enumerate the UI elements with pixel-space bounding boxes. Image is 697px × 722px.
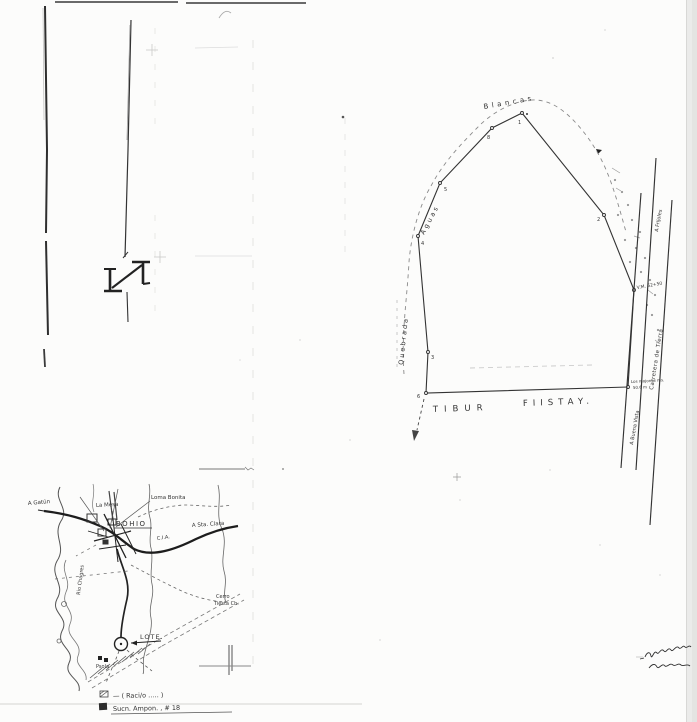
vertex-number-6: 6 — [417, 394, 420, 400]
vertex-number-4: 4 — [421, 241, 424, 247]
scan-canvas: 1 2 8 5 4 3 6 — [0, 0, 697, 722]
river-loop-2 — [57, 639, 61, 643]
dust-specks — [239, 29, 661, 641]
left-border-line — [45, 6, 47, 233]
map-legend: — ( Raci/o ….. ) Sucn. Ampon. , # 18 — [99, 691, 232, 714]
creek-dashed-line — [403, 100, 626, 374]
scanned-survey-document: 1 2 8 5 4 3 6 — [0, 0, 697, 722]
adjoiner-name-2: FIISTAY. — [523, 397, 594, 409]
main-road — [44, 511, 238, 553]
cia-label: C.I.A. — [156, 534, 170, 542]
creek-flow-arrow — [412, 430, 419, 441]
corner-note-line2: 50.6 m — [633, 384, 647, 390]
vertex-number-3: 3 — [431, 355, 434, 361]
school-label: Psola — [96, 664, 109, 670]
speck — [282, 468, 284, 470]
survey-plat: 1 2 8 5 4 3 6 — [397, 94, 672, 525]
plat-vertex-markers — [417, 112, 636, 395]
double-tick-mark — [229, 645, 232, 675]
cross-mark — [146, 44, 158, 56]
vertex-number-8: 8 — [487, 135, 490, 141]
rio-label: Rio Chagres — [76, 564, 86, 595]
traverse-line-figure — [104, 20, 150, 322]
lote-label: LOTE. — [140, 633, 164, 641]
lote-site-dot — [120, 643, 122, 645]
vertex-dot — [526, 113, 528, 115]
plat-boundary-west-south — [418, 113, 628, 393]
road-destination-north: A Frijoles — [654, 209, 664, 233]
cerro-label-line2: Tiesta Ch. — [213, 601, 239, 607]
legend-row2-text: Sucn. Ampon. , # 18 — [113, 704, 180, 713]
vertex-numbers: 1 2 8 5 4 3 6 — [417, 120, 600, 400]
scan-edge-band-dark — [692, 0, 697, 722]
dest-west-label: A Gatún — [28, 498, 51, 507]
left-border-line-2 — [46, 241, 48, 335]
town-name-label: BOHIO — [116, 520, 147, 528]
road-to-lote — [117, 549, 128, 637]
creek-label-quebrada: Quebrada — [397, 316, 410, 365]
plat-road-lines — [621, 158, 672, 525]
vertex-number-5: 5 — [444, 187, 447, 193]
vertex-number-2: 2 — [597, 217, 600, 223]
trail-east — [138, 505, 231, 517]
creek-wash-scribble — [612, 168, 659, 343]
school-square-2 — [104, 658, 108, 662]
adjoiner-name-1: TIBUR — [432, 403, 489, 415]
traverse-line-continuation — [127, 292, 128, 322]
traverse-main-line — [125, 20, 131, 257]
legend-symbol-hatched — [100, 691, 108, 697]
south-line-overdraw — [470, 365, 592, 368]
line-break-symbol — [104, 262, 150, 291]
trail-town-west — [76, 545, 96, 556]
river-delta-hatch — [90, 644, 150, 678]
surveyor-signature-scribble — [636, 646, 691, 668]
creek-flow-line — [417, 399, 424, 430]
loma-bonita-label: Loma Bonita — [151, 495, 186, 501]
legend-row1-text: — ( Raci/o ….. ) — [113, 691, 164, 700]
cross-mark-2 — [154, 251, 166, 263]
trail-to-cerro — [131, 565, 224, 602]
vertex-number-1: 1 — [518, 120, 521, 126]
small-cross — [453, 473, 461, 481]
lote-leader-arrow — [131, 641, 137, 646]
creek-label-blancas: Blancas — [483, 94, 535, 111]
stream-nw — [93, 484, 94, 512]
location-map: BOHIO Loma Bonita La Mesa C.I.A. A Sta. … — [28, 484, 244, 691]
left-border-line-3 — [44, 349, 45, 367]
left-border-echo — [43, 8, 44, 120]
dest-east-label: A Sta. Clara — [192, 521, 225, 529]
cerro-label-line1: Cerro — [216, 594, 230, 600]
plat-boundary-east — [522, 113, 634, 387]
la-mesa-label: La Mesa — [96, 502, 119, 509]
school-square-1 — [98, 656, 102, 660]
ink-dot — [342, 116, 345, 119]
stray-squiggle — [219, 11, 231, 18]
stray-scribble — [245, 467, 254, 470]
stream-east — [218, 485, 226, 603]
main-road-west-tick — [38, 510, 44, 511]
faint-guides — [195, 47, 252, 256]
junction-note: V.M. 62+50 — [636, 281, 663, 291]
scan-artifacts — [0, 0, 697, 722]
legend-symbol-solid — [99, 703, 107, 710]
